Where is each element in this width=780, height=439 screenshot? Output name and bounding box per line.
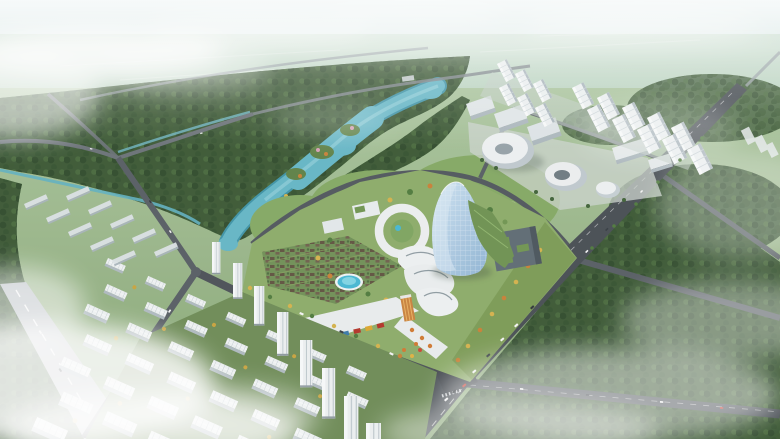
color-grade-overlay bbox=[0, 0, 780, 439]
rendering-canvas bbox=[0, 0, 780, 439]
aerial-masterplan-rendering bbox=[0, 0, 780, 439]
